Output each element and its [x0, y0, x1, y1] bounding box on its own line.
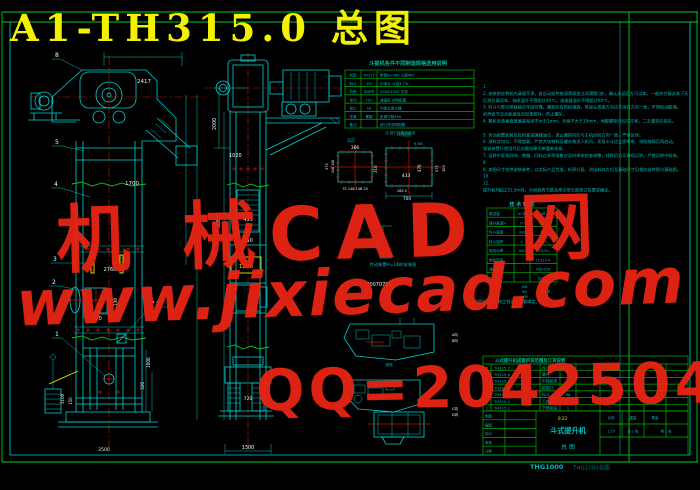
drive-motor — [28, 92, 80, 120]
tb-sheet1: 共 1 张 — [627, 429, 639, 434]
note-line: 4. 整机安装垂直度偏差每米不大于1mm，全高不大于10mm，地脚螺栓应均匀拧紧… — [483, 118, 676, 125]
side-motor — [270, 70, 341, 116]
watermark-qq: QQ=20425042 — [255, 350, 700, 425]
tb-name1: 斗式提升机 — [550, 426, 587, 435]
spec-cell: TH315 — [362, 74, 375, 78]
note-line: 6. 进料应均匀，不得超载，严禁大块物料及硬杂物进入机内，发现卡斗应立即停车，排… — [483, 138, 677, 145]
detail-a-dim-left: 375 — [325, 163, 329, 170]
tb-label: 日期 — [485, 449, 492, 454]
dim-150: 150 — [68, 397, 73, 405]
detail-a-dim-left2: 148 148 — [331, 160, 335, 173]
spec-table: 斗提机各件不同制造规格选用说明 机型 TH315 带宽B=400 斗距480 料… — [345, 59, 474, 135]
dim-320: 320 — [140, 382, 145, 390]
note-line: 张紧装置行程用尽后应截短牵引带重新张紧。 — [483, 145, 567, 152]
footer-codes: THG1000 THG1000总图 — [530, 463, 610, 472]
drawing-title: A1-TH315.0 总图 — [10, 0, 417, 52]
plan-label-1: A向 — [452, 332, 458, 337]
tb-label: 审核 — [485, 440, 492, 445]
balloon-5: 5 — [55, 139, 59, 146]
spec-cell: 带宽B=400 斗距480 — [380, 73, 415, 78]
detail-a-label: E向 — [347, 137, 355, 144]
spec-cell: ZD — [366, 82, 371, 86]
dim-2417: 2417 — [137, 79, 151, 85]
spec-cell: 螺旋 — [365, 114, 373, 119]
tb-label: 校对 — [485, 431, 492, 436]
spec-cell: 传动 — [349, 97, 357, 102]
spec-caption: 斗提机各件不同制造规格选用说明 — [369, 59, 447, 67]
spec-cell: 料斗 — [349, 81, 357, 86]
spec-cell: 减速机 外购配套 — [380, 97, 407, 102]
dim-720: 720 — [244, 396, 253, 402]
cad-viewport: 8 5 4 3 2 1 7 9 2417 1700 2760 430 130 1… — [0, 0, 700, 490]
spec-cell: 按订货说明配置 — [380, 122, 406, 127]
detail-a-dim-top: 366 — [351, 145, 360, 151]
note-line: 5. 传动装置安装后应检查减速器油位，逆止器转向应与主机运转方向一致，严禁反转。 — [483, 131, 643, 138]
spec-cell: 机壳 — [349, 89, 357, 94]
spec-cell: 机型 — [349, 73, 357, 78]
balloon-8: 8 — [55, 52, 59, 59]
note-line: 1. — [483, 84, 487, 89]
tb-label: 描图 — [485, 422, 492, 427]
spec-cell: YZC — [365, 98, 373, 102]
spec-cell: NJ — [367, 107, 371, 111]
spec-cell: 2000/1000 可选 — [380, 89, 408, 94]
spec-cell: 中间节 — [364, 89, 375, 94]
dim-1300: 1300 — [242, 445, 255, 451]
footer-code: THG1000 — [530, 463, 564, 471]
note-line: 3. 料斗与牵引带联接应牢固可靠，螺栓应有防松措施，带接头搭接方向应与运行方向一… — [483, 104, 681, 111]
footer-name: THG1000总图 — [572, 464, 610, 472]
note-line: 机壳各节法兰联接处应加垫密封，防止漏灰。 — [483, 111, 567, 118]
note-line: 8. — [483, 160, 487, 165]
dim-2000: 2000 — [212, 118, 218, 130]
tb-scale: 1:25 — [607, 430, 615, 434]
dim-3100: 3100 — [60, 393, 65, 404]
spec-cell: 内装式逆止器 — [380, 106, 402, 111]
spec-cell: 逆止 — [349, 106, 357, 111]
detail-b-6m8: 6-M8 — [414, 142, 423, 146]
note-line: 后再负载试车，轴承温升不得超过40℃，减速器温升不得超过60℃。 — [483, 97, 612, 104]
note-line: 2. 安装前应将机内清理干净，各运动部件按润滑表加注润滑脂(油)，确认无误后方可… — [483, 90, 689, 97]
spec-cell: 中深斗 斗容3.75L — [380, 81, 409, 86]
spec-cell: 张紧 — [349, 114, 357, 119]
tb-name2: 总 图 — [561, 443, 575, 451]
dim-2500: 2500 — [98, 447, 110, 453]
discharge-chute — [146, 118, 197, 165]
dim-1020: 1020 — [229, 153, 242, 159]
spec-cell: 张紧行程450 — [380, 114, 402, 119]
spec-cell: 备注 — [349, 122, 357, 127]
plan-label-2: B向 — [452, 338, 458, 343]
note-line: 7. 运转中发现异响、跑偏、回料过多等现象应及时停车检查调整，排除后方可继续运转… — [483, 152, 681, 159]
tb-sheet2: 第 1 张 — [660, 429, 672, 434]
spec-note: 注:按订货要求选用 — [385, 130, 415, 135]
dim-1000: 1000 — [146, 357, 151, 368]
